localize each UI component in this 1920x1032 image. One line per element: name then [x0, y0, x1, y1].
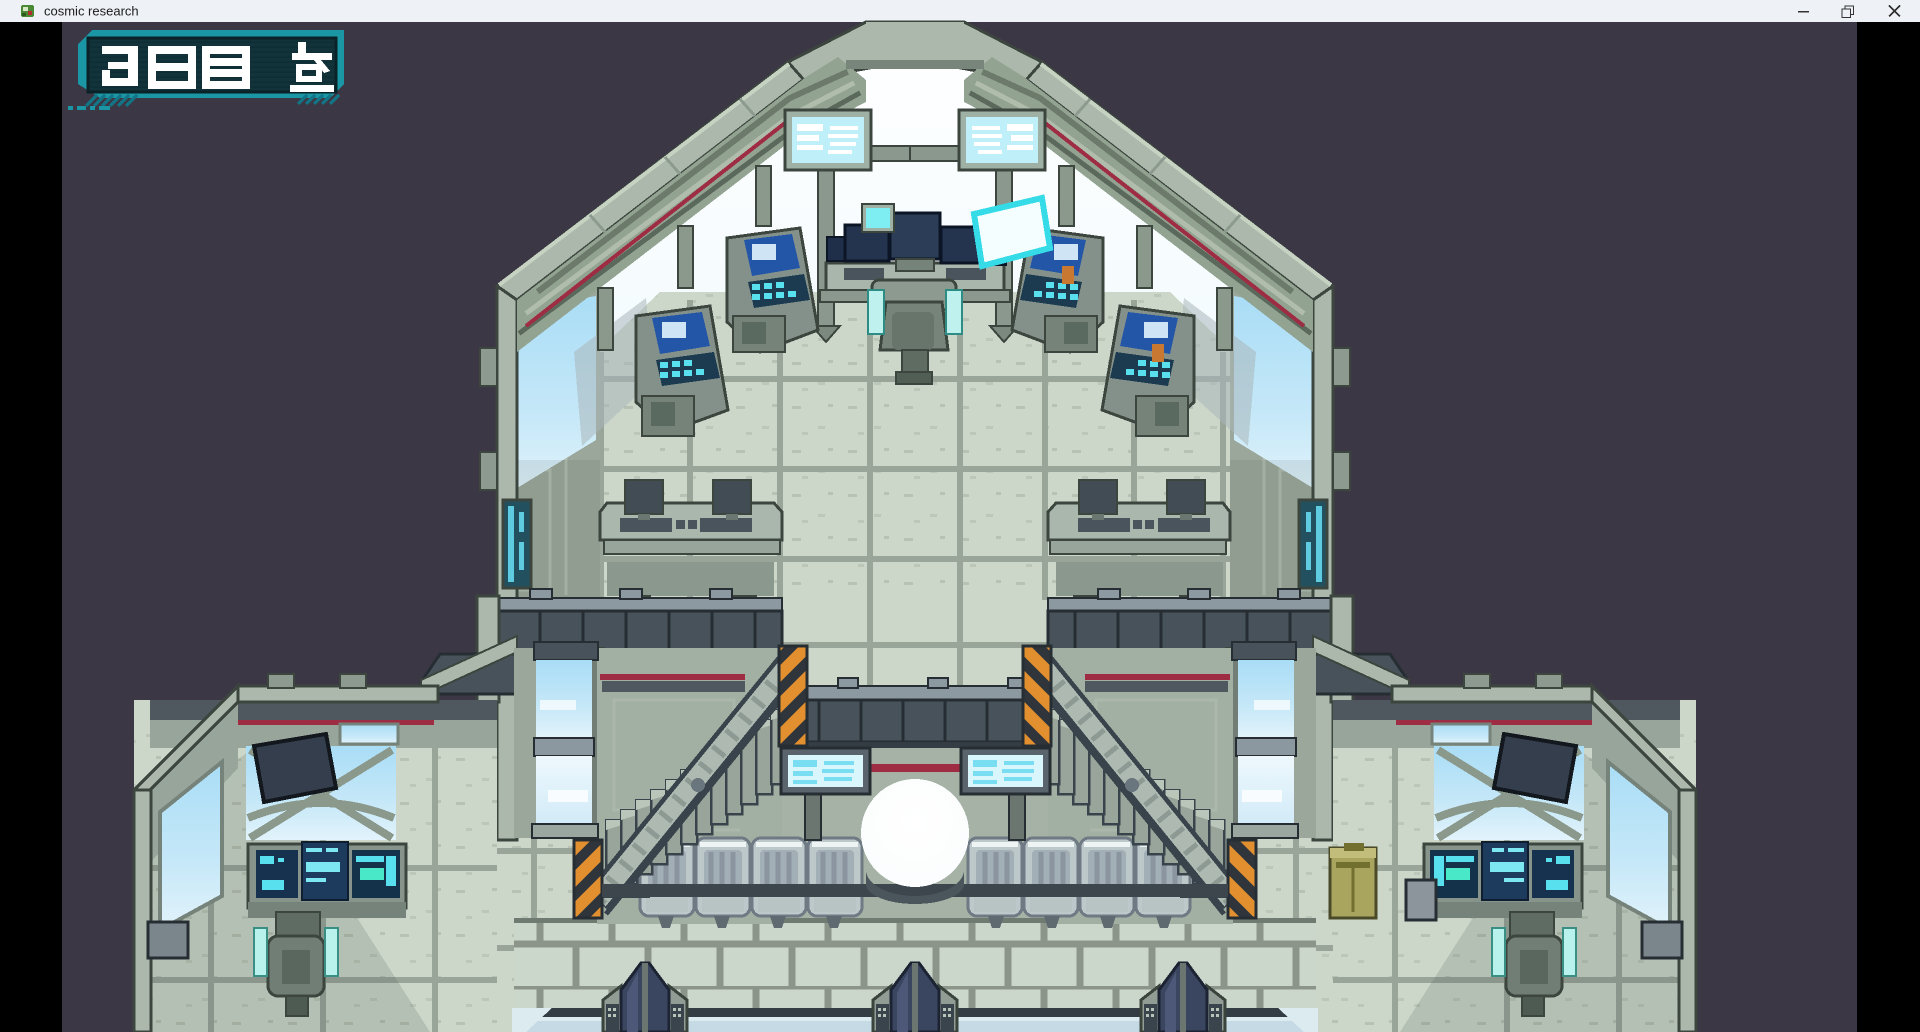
svg-text:cosmic research: cosmic research: [44, 4, 139, 19]
